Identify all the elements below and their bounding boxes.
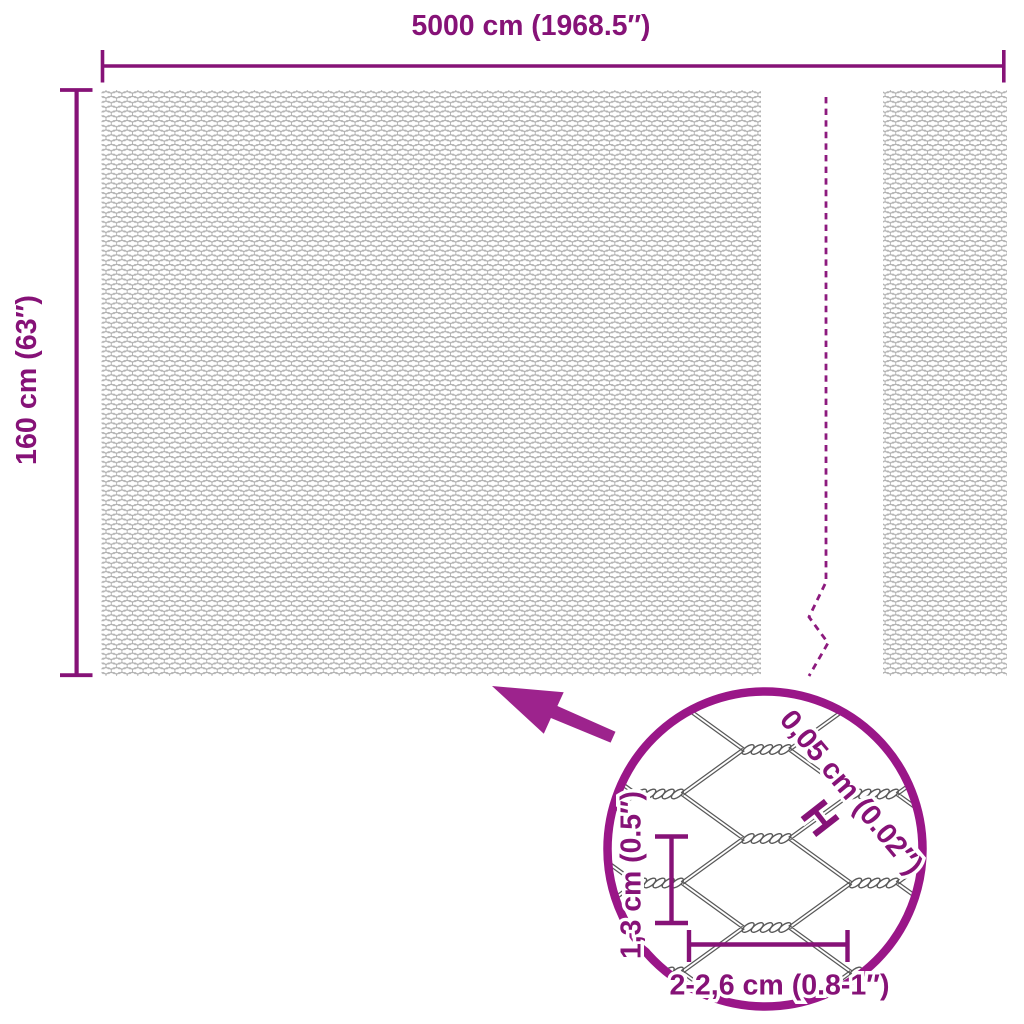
svg-text:5000 cm (1968.5″): 5000 cm (1968.5″) (412, 10, 651, 42)
svg-text:160 cm (63″): 160 cm (63″) (11, 295, 43, 465)
svg-text:1,3 cm (0.5″): 1,3 cm (0.5″) (616, 791, 648, 959)
svg-text:2-2,6 cm (0.8-1″): 2-2,6 cm (0.8-1″) (670, 970, 890, 1002)
